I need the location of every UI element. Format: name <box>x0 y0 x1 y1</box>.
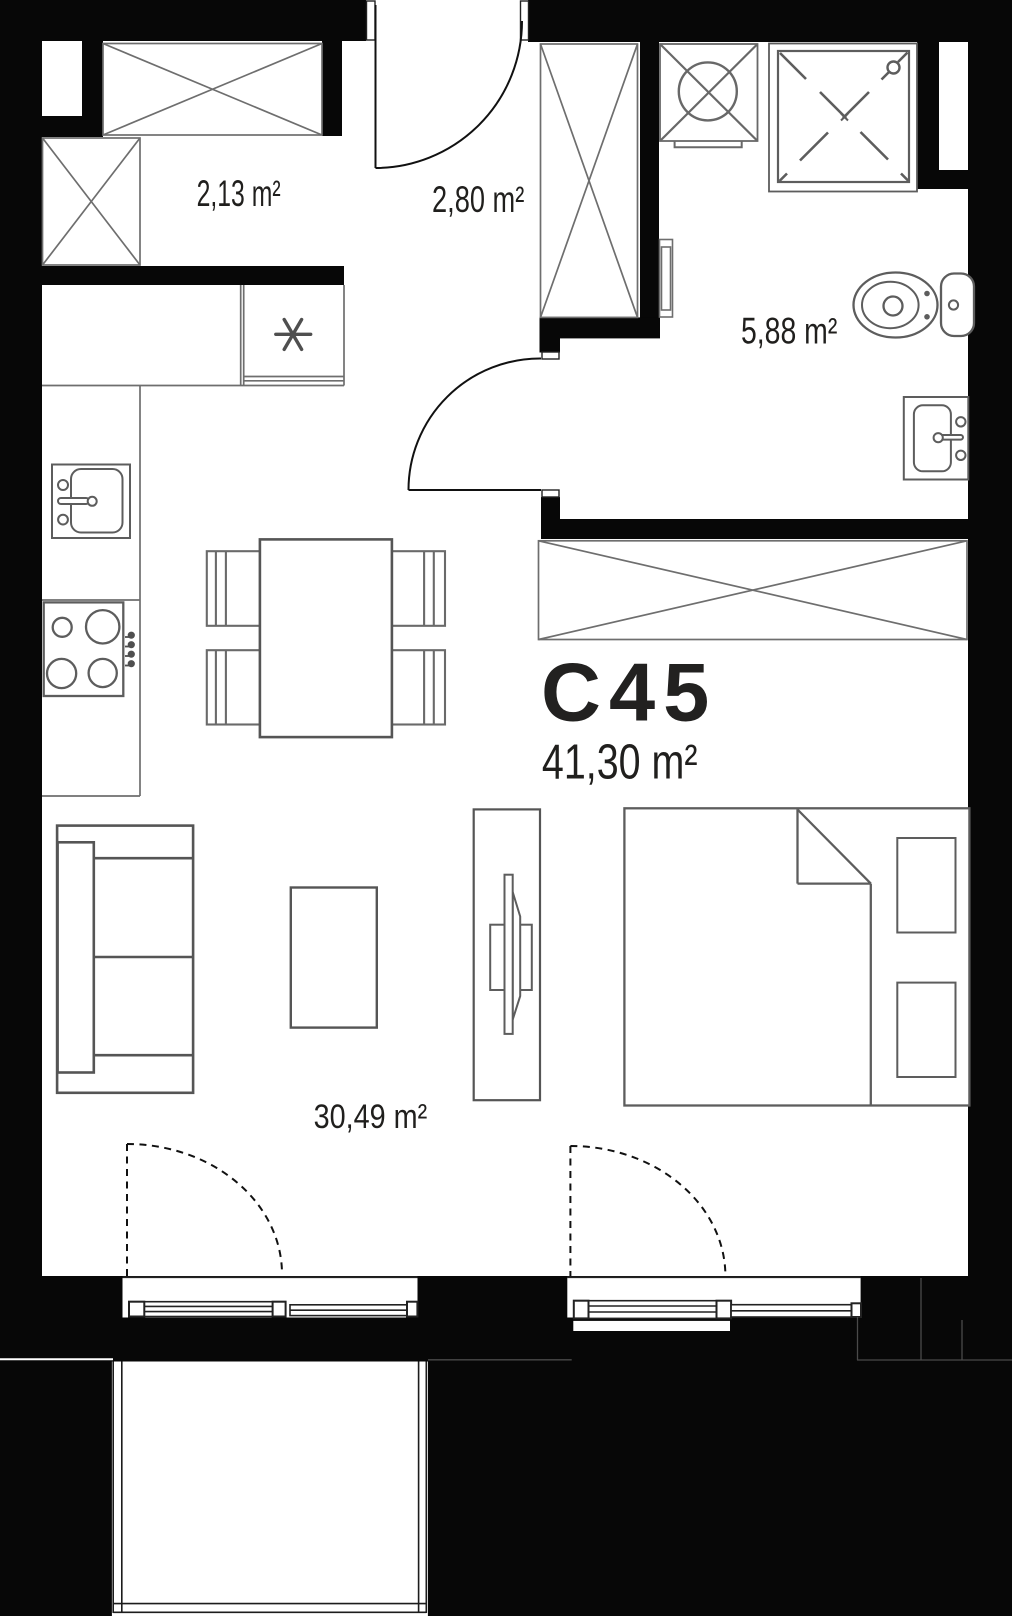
svg-text:5,88 m²: 5,88 m² <box>741 310 837 351</box>
svg-text:41,30 m²: 41,30 m² <box>542 735 698 789</box>
svg-text:2,13 m²: 2,13 m² <box>197 172 281 214</box>
svg-text:C45: C45 <box>541 646 717 739</box>
svg-text:2,80 m²: 2,80 m² <box>432 179 524 220</box>
svg-text:30,49 m²: 30,49 m² <box>314 1096 428 1135</box>
